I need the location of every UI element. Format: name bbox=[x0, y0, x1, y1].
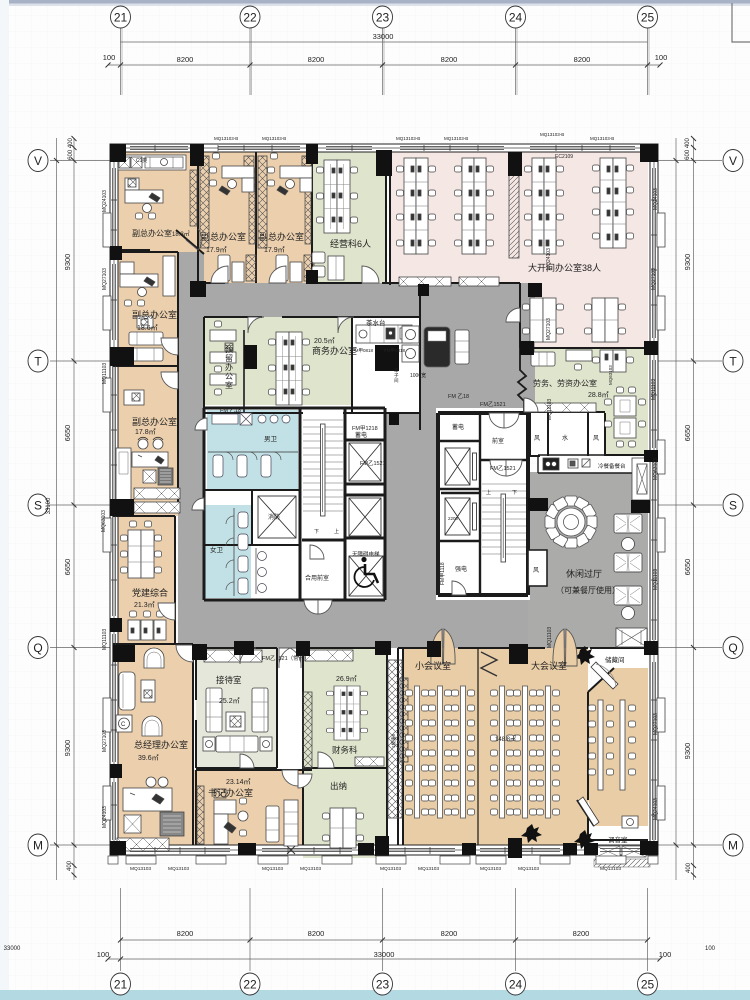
svg-text:8200: 8200 bbox=[441, 929, 458, 938]
svg-text:M: M bbox=[33, 839, 43, 853]
svg-text:副总办公室: 副总办公室 bbox=[132, 416, 177, 427]
svg-text:储藏间: 储藏间 bbox=[605, 655, 625, 664]
svg-text:39.6㎡: 39.6㎡ bbox=[138, 754, 159, 762]
svg-text:21: 21 bbox=[114, 978, 128, 992]
svg-text:MQ63103: MQ63103 bbox=[653, 458, 659, 480]
svg-text:25: 25 bbox=[641, 11, 655, 25]
svg-text:24: 24 bbox=[509, 978, 523, 992]
svg-text:FM 乙18: FM 乙18 bbox=[220, 407, 241, 414]
svg-text:22: 22 bbox=[243, 978, 257, 992]
svg-text:副总办公室: 副总办公室 bbox=[132, 309, 177, 320]
svg-text:100: 100 bbox=[97, 950, 110, 959]
svg-text:6650: 6650 bbox=[63, 559, 72, 576]
svg-text:8200: 8200 bbox=[308, 929, 325, 938]
svg-text:25: 25 bbox=[641, 978, 655, 992]
svg-text:MQ13103-B: MQ13103-B bbox=[214, 136, 238, 141]
svg-text:17.9㎡: 17.9㎡ bbox=[264, 246, 285, 254]
svg-text:23: 23 bbox=[376, 978, 390, 992]
svg-text:MQ63103: MQ63103 bbox=[101, 510, 107, 532]
svg-text:17.9㎡: 17.9㎡ bbox=[206, 246, 227, 254]
svg-text:148.8㎡: 148.8㎡ bbox=[495, 735, 516, 743]
svg-text:21: 21 bbox=[114, 11, 128, 25]
svg-text:400: 400 bbox=[686, 862, 692, 873]
svg-text:MQ13103: MQ13103 bbox=[518, 866, 539, 872]
svg-text:23: 23 bbox=[376, 11, 390, 25]
svg-text:休闲过厅: 休闲过厅 bbox=[566, 568, 602, 579]
svg-text:EC2109: EC2109 bbox=[555, 154, 573, 160]
svg-text:T: T bbox=[34, 355, 42, 369]
svg-text:MQ24103: MQ24103 bbox=[653, 798, 659, 820]
svg-text:22: 22 bbox=[243, 11, 257, 25]
svg-text:6650: 6650 bbox=[63, 425, 72, 442]
svg-text:出纳: 出纳 bbox=[330, 781, 347, 791]
svg-text:26.9㎡: 26.9㎡ bbox=[336, 675, 357, 683]
svg-text:400: 400 bbox=[67, 860, 73, 871]
svg-text:大会议室: 大会议室 bbox=[531, 660, 567, 671]
svg-text:FM甲1118: FM甲1118 bbox=[440, 562, 446, 585]
svg-text:8200: 8200 bbox=[308, 55, 325, 64]
svg-text:无障碍电梯: 无障碍电梯 bbox=[352, 550, 380, 558]
svg-text:S: S bbox=[34, 499, 42, 513]
svg-text:MQ11103: MQ11103 bbox=[102, 363, 108, 384]
svg-text:Q: Q bbox=[33, 641, 42, 655]
svg-text:蓄电: 蓄电 bbox=[452, 423, 464, 431]
svg-text:33000: 33000 bbox=[4, 946, 21, 952]
svg-text:调音室: 调音室 bbox=[608, 835, 628, 844]
svg-text:21.3㎡: 21.3㎡ bbox=[134, 601, 155, 609]
svg-text:风: 风 bbox=[593, 435, 599, 442]
svg-text:8200: 8200 bbox=[177, 929, 194, 938]
svg-text:上: 上 bbox=[486, 489, 491, 496]
svg-text:MQ11103: MQ11103 bbox=[653, 569, 659, 590]
svg-text:6650: 6650 bbox=[683, 425, 692, 442]
svg-text:（可兼餐厅使用）: （可兼餐厅使用） bbox=[556, 585, 620, 595]
svg-text:强电: 强电 bbox=[455, 565, 467, 573]
svg-text:MQ27103: MQ27103 bbox=[653, 713, 659, 735]
svg-text:MQ13103: MQ13103 bbox=[300, 866, 321, 872]
svg-text:MQ13103: MQ13103 bbox=[168, 866, 189, 872]
svg-text:MQ27103: MQ27103 bbox=[546, 318, 552, 340]
svg-text:1极速8: 1极速8 bbox=[390, 733, 397, 748]
svg-text:C1类: C1类 bbox=[136, 157, 147, 164]
svg-text:劳务、劳资办公室: 劳务、劳资办公室 bbox=[533, 378, 597, 388]
svg-text:MQ11103: MQ11103 bbox=[651, 379, 657, 400]
svg-text:MQ13103-B: MQ13103-B bbox=[590, 136, 614, 141]
svg-text:MQ24103: MQ24103 bbox=[546, 248, 552, 270]
svg-text:8200: 8200 bbox=[177, 55, 194, 64]
svg-text:风: 风 bbox=[534, 435, 540, 442]
svg-text:MQ13103-B: MQ13103-B bbox=[262, 136, 286, 141]
svg-text:MQ13103: MQ13103 bbox=[480, 866, 501, 872]
svg-text:6650: 6650 bbox=[683, 559, 692, 576]
svg-text:女卫: 女卫 bbox=[210, 545, 224, 554]
svg-text:FM乙1521: FM乙1521 bbox=[490, 465, 516, 472]
svg-text:600 400: 600 400 bbox=[685, 138, 691, 160]
svg-text:上: 上 bbox=[334, 528, 339, 535]
svg-text:下: 下 bbox=[512, 490, 517, 496]
svg-text:M: M bbox=[728, 839, 738, 853]
svg-text:24: 24 bbox=[509, 11, 523, 25]
svg-text:9300: 9300 bbox=[63, 254, 72, 271]
svg-text:FM乙1521（常开）: FM乙1521（常开） bbox=[262, 654, 310, 662]
svg-text:大开间办公室38人: 大开间办公室38人 bbox=[528, 262, 601, 273]
svg-text:S: S bbox=[729, 499, 737, 513]
svg-text:MQ13103: MQ13103 bbox=[418, 866, 439, 872]
svg-text:茶水台: 茶水台 bbox=[366, 318, 386, 327]
svg-text:20.5㎡: 20.5㎡ bbox=[314, 337, 335, 345]
svg-text:书记办公室: 书记办公室 bbox=[208, 787, 253, 798]
svg-text:MQ24103: MQ24103 bbox=[102, 806, 108, 828]
svg-text:MQ27103: MQ27103 bbox=[651, 268, 657, 290]
svg-text:MQ13103: MQ13103 bbox=[262, 866, 283, 872]
svg-text:男卫: 男卫 bbox=[264, 435, 278, 443]
svg-text:MQ11103: MQ11103 bbox=[102, 629, 108, 650]
svg-text:MQ13103-B: MQ13103-B bbox=[540, 132, 564, 137]
svg-text:接待室: 接待室 bbox=[216, 675, 242, 685]
svg-text:600 400: 600 400 bbox=[68, 138, 74, 160]
svg-text:小会议室: 小会议室 bbox=[415, 660, 451, 671]
svg-text:MQ13103: MQ13103 bbox=[130, 866, 151, 872]
svg-text:党建综合: 党建综合 bbox=[132, 587, 168, 598]
svg-text:8200: 8200 bbox=[441, 55, 458, 64]
svg-text:23.14㎡: 23.14㎡ bbox=[226, 778, 251, 786]
svg-text:MQ27103: MQ27103 bbox=[102, 268, 108, 290]
svg-text:总经理办公室: 总经理办公室 bbox=[134, 739, 188, 750]
svg-text:25.2㎡: 25.2㎡ bbox=[219, 697, 240, 705]
svg-text:副总办公室: 副总办公室 bbox=[201, 231, 246, 242]
svg-text:水: 水 bbox=[562, 434, 568, 442]
svg-text:冷餐备餐台: 冷餐备餐台 bbox=[598, 462, 626, 470]
svg-text:V: V bbox=[729, 154, 737, 168]
svg-text:伞子间: 伞子间 bbox=[394, 367, 399, 384]
svg-text:MQ13103-B: MQ13103-B bbox=[444, 136, 468, 141]
svg-text:17.8㎡: 17.8㎡ bbox=[135, 428, 156, 436]
svg-text:C: C bbox=[121, 722, 126, 728]
svg-text:9300: 9300 bbox=[63, 740, 72, 757]
svg-text:预留办公室: 预留办公室 bbox=[225, 344, 233, 390]
svg-text:100: 100 bbox=[705, 946, 716, 952]
svg-text:1000宽: 1000宽 bbox=[410, 372, 426, 379]
svg-text:MQ13103: MQ13103 bbox=[380, 866, 401, 872]
svg-text:前室: 前室 bbox=[492, 437, 504, 445]
svg-text:MQ11103: MQ11103 bbox=[547, 627, 553, 648]
svg-text:33100: 33100 bbox=[46, 497, 52, 514]
svg-text:18.6㎡: 18.6㎡ bbox=[137, 324, 158, 332]
svg-text:MQ11103: MQ11103 bbox=[547, 399, 553, 420]
svg-text:蓄电: 蓄电 bbox=[355, 431, 367, 439]
svg-text:风: 风 bbox=[533, 567, 539, 574]
svg-text:商务办公室: 商务办公室 bbox=[312, 345, 357, 356]
svg-text:MQ24103: MQ24103 bbox=[102, 190, 108, 212]
svg-text:9300: 9300 bbox=[683, 254, 692, 271]
svg-text:Q: Q bbox=[728, 641, 737, 655]
svg-text:消防: 消防 bbox=[268, 513, 280, 521]
svg-text:100: 100 bbox=[103, 53, 116, 62]
svg-text:下: 下 bbox=[314, 529, 319, 535]
svg-text:FM 乙18: FM 乙18 bbox=[448, 393, 469, 400]
svg-text:100: 100 bbox=[655, 53, 668, 62]
svg-text:MQ27103: MQ27103 bbox=[102, 730, 108, 752]
svg-text:FM乙1521: FM乙1521 bbox=[360, 460, 386, 467]
svg-text:V: V bbox=[34, 154, 42, 168]
svg-text:100: 100 bbox=[659, 950, 672, 959]
svg-text:MQ13103: MQ13103 bbox=[600, 866, 621, 872]
svg-text:8200: 8200 bbox=[573, 929, 590, 938]
svg-text:财务科: 财务科 bbox=[332, 745, 358, 755]
svg-text:合用前室: 合用前室 bbox=[305, 574, 329, 582]
svg-text:28.8㎡: 28.8㎡ bbox=[588, 391, 609, 399]
svg-text:33000: 33000 bbox=[373, 32, 394, 41]
svg-text:33000: 33000 bbox=[374, 950, 395, 959]
svg-text:MQ13103-B: MQ13103-B bbox=[396, 136, 420, 141]
svg-text:T: T bbox=[729, 355, 737, 369]
svg-text:MQ24103: MQ24103 bbox=[653, 188, 659, 210]
svg-text:FM甲1218: FM甲1218 bbox=[352, 425, 378, 432]
svg-text:经营科6人: 经营科6人 bbox=[330, 238, 371, 249]
svg-text:副总办公室: 副总办公室 bbox=[259, 231, 304, 242]
svg-text:FM乙1521: FM乙1521 bbox=[480, 401, 506, 408]
svg-text:8200: 8200 bbox=[574, 55, 591, 64]
svg-text:MQ63103: MQ63103 bbox=[608, 365, 613, 385]
svg-text:2200: 2200 bbox=[448, 516, 459, 521]
svg-text:9300: 9300 bbox=[683, 743, 692, 760]
